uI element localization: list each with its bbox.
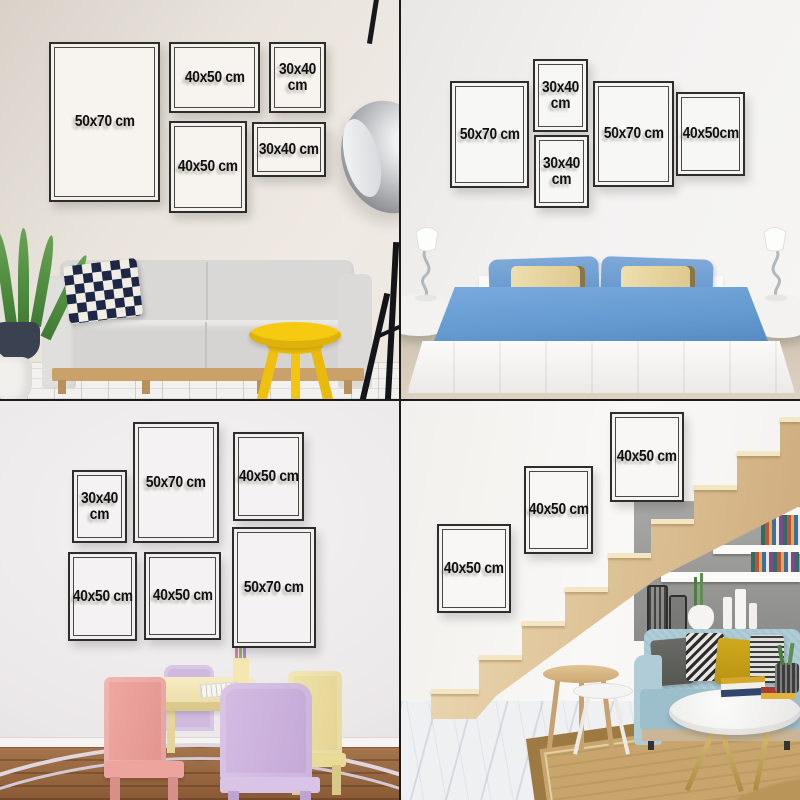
- lamp-pole: [367, 0, 380, 44]
- frame-size-label: 30x40cm: [279, 62, 316, 92]
- frame-size-label: 40x50 cm: [239, 469, 299, 484]
- lavender-chair-front: [220, 683, 320, 800]
- frame-size-label: 40x50 cm: [73, 589, 133, 604]
- table-lamp-right: [755, 226, 795, 302]
- dark-plant-pot: [0, 322, 40, 360]
- frame-size-label: 50x70 cm: [75, 114, 135, 129]
- picture-frame-30x40: 30x40cm: [533, 59, 588, 132]
- candle: [749, 603, 757, 629]
- white-pot: [0, 357, 32, 399]
- pencil-cup: [233, 657, 249, 683]
- candle: [735, 589, 746, 629]
- picture-frame-30x40: 30x40cm: [269, 42, 326, 113]
- picture-frame-40x50: 40x50 cm: [524, 466, 593, 554]
- picture-frame-40x50: 40x50 cm: [68, 552, 137, 641]
- bedroom-scene: 50x70 cm 30x40cm 30x40cm 50x70 cm 40x50c…: [401, 0, 800, 399]
- frame-size-label: 50x70 cm: [244, 580, 304, 595]
- picture-frame-50x70: 50x70 cm: [232, 527, 316, 648]
- kids-room-scene: 30x40cm 50x70 cm 40x50 cm 40x50 cm 40x50…: [0, 401, 399, 800]
- picture-frame-50x70: 50x70 cm: [593, 81, 674, 187]
- frame-size-label: 40x50cm: [682, 126, 738, 141]
- frame-size-label: 30x40cm: [542, 80, 579, 110]
- frame-size-label: 40x50 cm: [617, 449, 677, 464]
- plant-stem: [700, 573, 703, 607]
- frame-size-label: 40x50 cm: [529, 502, 589, 517]
- frame-size-label: 50x70 cm: [460, 127, 520, 142]
- picture-frame-50x70: 50x70 cm: [49, 42, 160, 202]
- book-row: [751, 552, 799, 573]
- plant-stem: [694, 577, 697, 607]
- picture-frame-30x40: 30x40cm: [72, 470, 127, 543]
- black-white-planter: [775, 663, 799, 693]
- picture-frame-40x50: 40x50 cm: [610, 412, 684, 502]
- picture-frame-40x50: 40x50cm: [676, 92, 745, 176]
- picture-frame-40x50: 40x50 cm: [437, 524, 511, 613]
- frame-size-label: 30x40cm: [81, 491, 118, 521]
- triangle-pattern-pillow: [63, 258, 144, 325]
- pink-chair: [104, 677, 200, 800]
- frame-size-label: 50x70 cm: [146, 475, 206, 490]
- frame-size-label: 40x50 cm: [153, 588, 213, 603]
- frame-size-label: 50x70 cm: [604, 126, 664, 141]
- picture-frame-40x50: 40x50 cm: [169, 121, 247, 213]
- picture-frame-30x40: 30x40 cm: [252, 122, 326, 177]
- table-lamp-left: [407, 226, 447, 302]
- living-room-scene: 50x70 cm 40x50 cm 30x40cm 40x50 cm 30x40…: [0, 0, 399, 399]
- marble-coffee-table: [669, 689, 800, 800]
- bookshelf: [661, 572, 800, 582]
- frame-size-label: 30x40cm: [543, 156, 580, 186]
- frame-size-label: 40x50 cm: [444, 561, 504, 576]
- picture-frame-40x50: 40x50 cm: [169, 42, 260, 113]
- picture-frame-50x70: 50x70 cm: [133, 422, 219, 543]
- picture-frame-40x50: 40x50 cm: [233, 432, 304, 521]
- frame-size-label: 40x50 cm: [178, 159, 238, 174]
- picture-frame-40x50: 40x50 cm: [144, 552, 221, 640]
- frame-size-label: 40x50 cm: [185, 70, 245, 85]
- staircase-room-scene: 40x50 cm 40x50 cm 40x50 cm: [401, 401, 800, 800]
- frame-size-label: 30x40 cm: [259, 142, 319, 157]
- yellow-stool: [249, 322, 341, 399]
- candle: [723, 597, 732, 629]
- picture-frame-30x40: 30x40cm: [534, 135, 589, 208]
- picture-frame-50x70: 50x70 cm: [450, 81, 529, 188]
- room-mockup-collage: 50x70 cm 40x50 cm 30x40cm 40x50 cm 30x40…: [0, 0, 800, 800]
- white-side-table: [573, 683, 631, 757]
- white-bed-platform: [407, 341, 795, 393]
- blue-mattress: [431, 287, 771, 349]
